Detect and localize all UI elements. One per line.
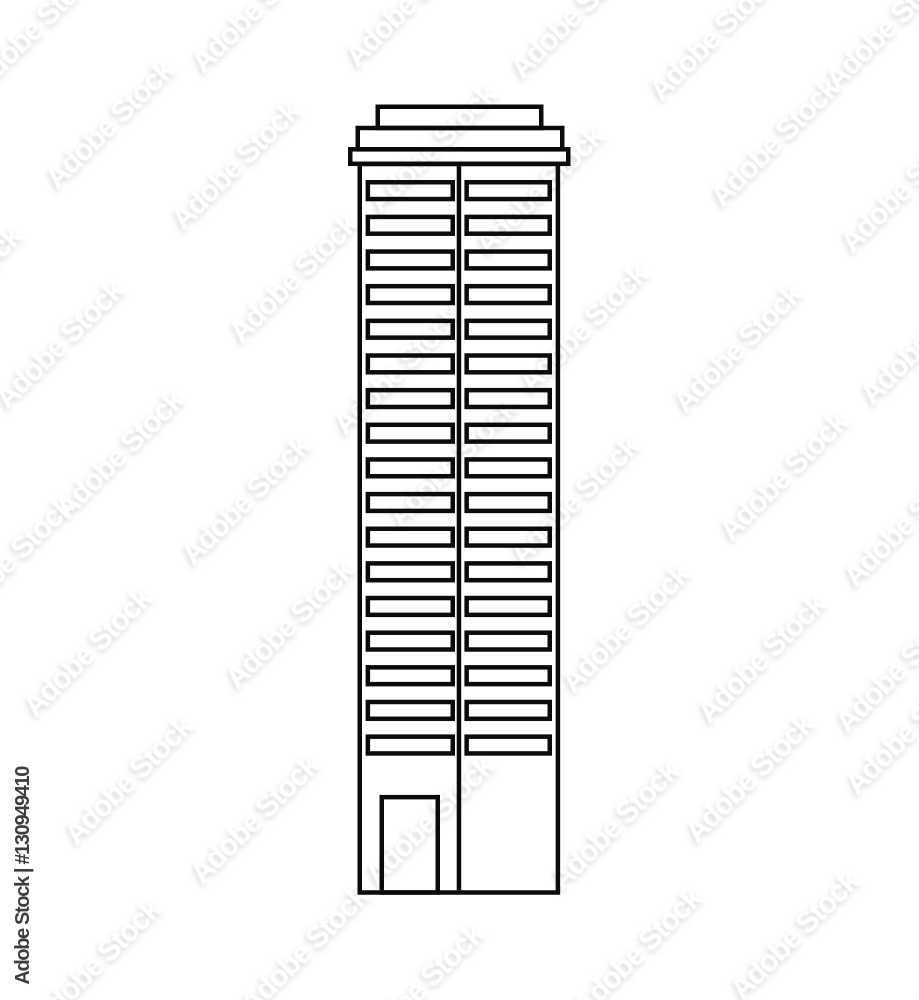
svg-text:Adobe Stock | #130949410: Adobe Stock | #130949410 <box>12 766 34 985</box>
